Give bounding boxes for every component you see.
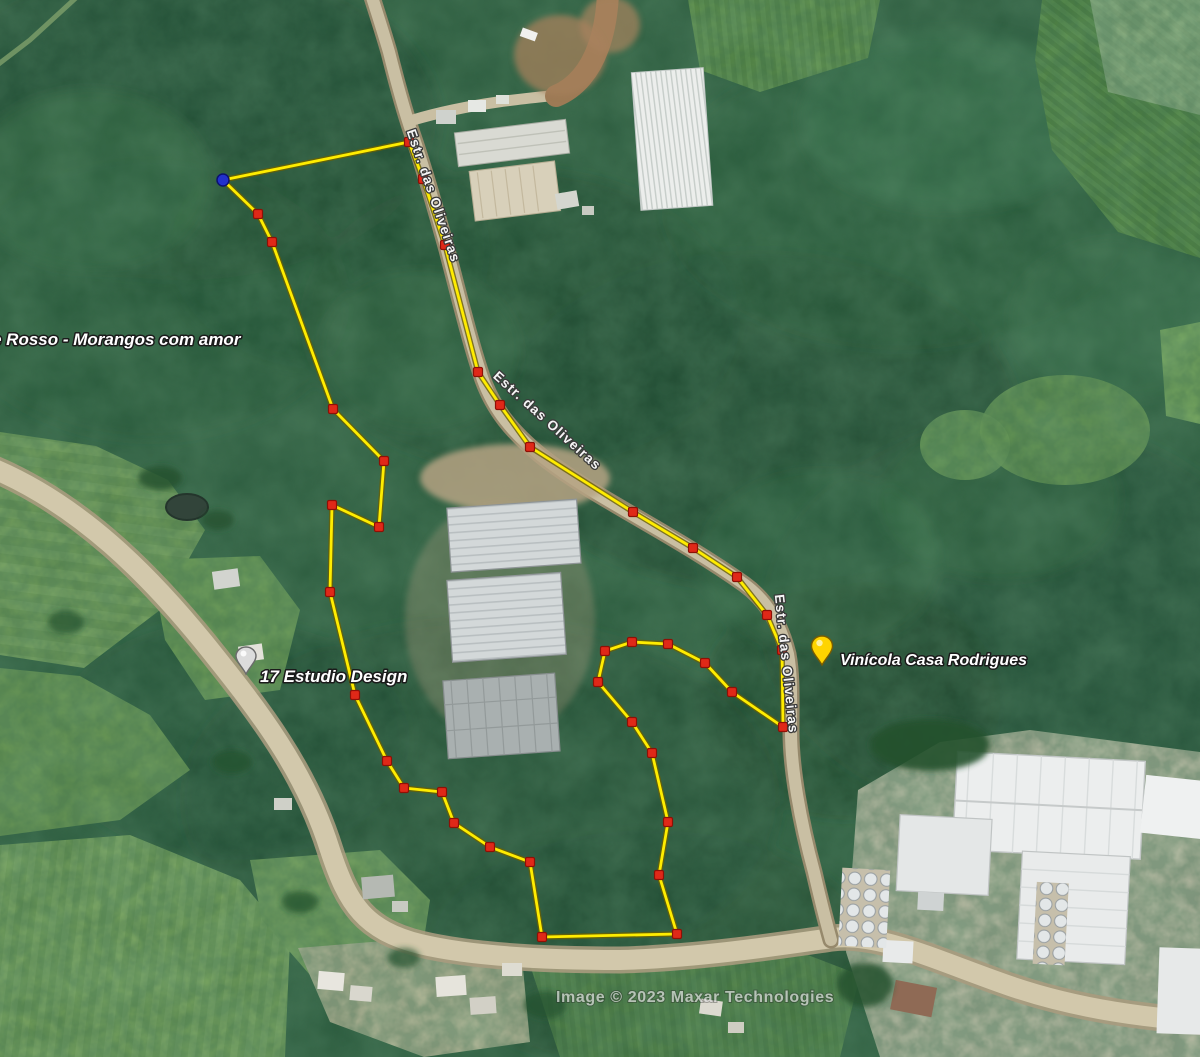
building [502, 963, 522, 976]
barn-roof [447, 499, 581, 572]
boundary-vertex[interactable] [351, 691, 360, 700]
boundary-vertex[interactable] [601, 647, 610, 656]
boundary-vertex[interactable] [728, 688, 737, 697]
winery-label: Vinícola Casa Rodrigues [840, 652, 1027, 669]
pin-highlight [816, 640, 822, 646]
boundary-vertex[interactable] [594, 678, 603, 687]
bare-plot [469, 161, 560, 221]
building [392, 901, 408, 912]
boundary-vertex[interactable] [486, 843, 495, 852]
farm-shed [468, 100, 486, 112]
boundary-vertex[interactable] [474, 368, 483, 377]
boundary-vertex[interactable] [648, 749, 657, 758]
boundary-vertex[interactable] [268, 238, 277, 247]
boundary-vertex[interactable] [326, 588, 335, 597]
boundary-vertex[interactable] [689, 544, 698, 553]
boundary-vertex[interactable] [496, 401, 505, 410]
boundary-vertex[interactable] [254, 210, 263, 219]
tank-farm [838, 868, 890, 948]
building [1157, 947, 1200, 1034]
farm-shed [582, 206, 594, 215]
building [728, 1022, 744, 1033]
building [361, 875, 395, 900]
studio-label: 17 Estudio Design [260, 667, 407, 686]
boundary-vertex[interactable] [329, 405, 338, 414]
boundary-vertex[interactable] [763, 611, 772, 620]
pin-highlight [241, 651, 247, 657]
crop-netting [631, 68, 712, 211]
farm-shed [436, 110, 456, 124]
boundary-vertex[interactable] [383, 757, 392, 766]
boundary-vertex[interactable] [538, 933, 547, 942]
building [435, 975, 466, 997]
boundary-vertex[interactable] [400, 784, 409, 793]
boundary-vertex[interactable] [664, 640, 673, 649]
boundary-vertex[interactable] [380, 457, 389, 466]
building [317, 971, 344, 991]
pond [166, 494, 208, 520]
boundary-vertex[interactable] [629, 508, 638, 517]
barn-roof [447, 572, 566, 662]
boundary-vertex[interactable] [701, 659, 710, 668]
boundary-vertex[interactable] [673, 930, 682, 939]
farm-label: e Rosso - Morangos com amor [0, 330, 242, 349]
boundary-vertex[interactable] [438, 788, 447, 797]
building [212, 568, 240, 589]
imagery-attribution: Image © 2023 Maxar Technologies [556, 989, 834, 1006]
satellite-map[interactable]: Estr. das Oliveiras Estr. das Oliveiras … [0, 0, 1200, 1057]
boundary-vertex[interactable] [655, 871, 664, 880]
building [469, 996, 496, 1015]
tank-farm [1033, 882, 1069, 966]
building [274, 798, 292, 810]
boundary-vertex[interactable] [526, 858, 535, 867]
boundary-vertex[interactable] [526, 443, 535, 452]
building [349, 985, 372, 1002]
boundary-vertex[interactable] [628, 638, 637, 647]
farm-shed [496, 95, 509, 104]
building [1140, 775, 1200, 839]
boundary-vertex[interactable] [628, 718, 637, 727]
boundary-vertex[interactable] [328, 501, 337, 510]
boundary-start-vertex[interactable] [217, 174, 229, 186]
boundary-vertex[interactable] [664, 818, 673, 827]
boundary-vertex[interactable] [733, 573, 742, 582]
boundary-vertex[interactable] [375, 523, 384, 532]
boundary-vertex[interactable] [450, 819, 459, 828]
